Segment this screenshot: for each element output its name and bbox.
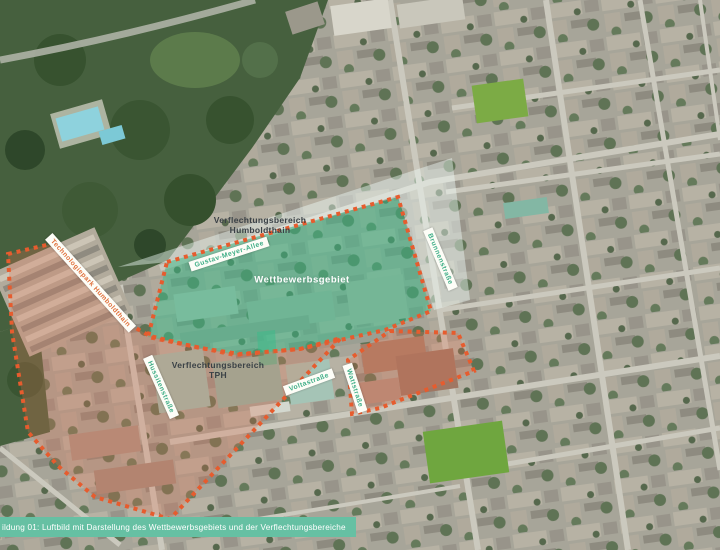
label-verflechtungsbereich-humboldthain: Verflechtungsbereich Humboldthain — [214, 216, 306, 236]
aerial-basemap — [0, 0, 720, 550]
figure-caption-bar: ildung 01: Luftbild mit Darstellung des … — [0, 517, 356, 537]
label-wettbewerbsgebiet: Wettbewerbsgebiet — [254, 276, 349, 287]
figure-caption-text: ildung 01: Luftbild mit Darstellung des … — [2, 523, 346, 532]
label-line: Humboldthain — [214, 226, 306, 236]
label-line: TPH — [172, 371, 264, 381]
label-verflechtungsbereich-tph: Verflechtungsbereich TPH — [172, 361, 264, 381]
aerial-figure: Gustav-Meyer-Allee Brunnenstraße Hussite… — [0, 0, 720, 550]
